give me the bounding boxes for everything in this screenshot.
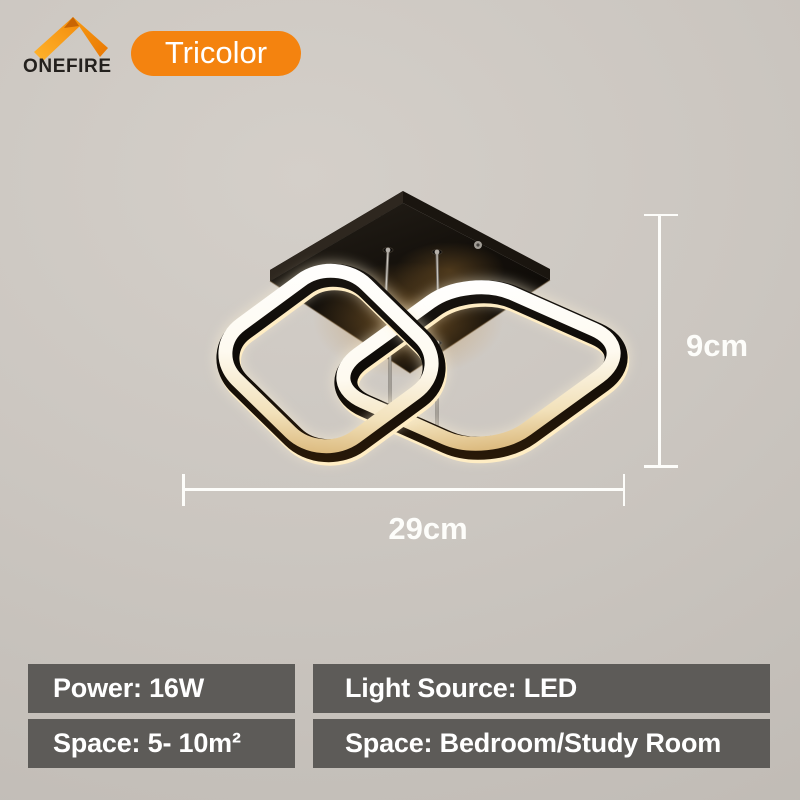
tricolor-badge: Tricolor <box>131 31 301 76</box>
width-dimension-label: 29cm <box>368 511 488 547</box>
brand-name: ONEFIRE <box>21 56 133 78</box>
spec-bar-light-source: Light Source: LED <box>313 664 770 713</box>
height-dimension-cap-bottom <box>644 465 678 468</box>
width-dimension-line <box>182 488 625 491</box>
logo-right-arm <box>73 17 108 57</box>
width-dimension-cap-right <box>623 474 626 506</box>
height-dimension-line <box>658 215 661 467</box>
onefire-logo-icon <box>30 14 112 62</box>
ceiling-lamp-photo <box>150 170 670 490</box>
spec-bar-space-size: Space: 5- 10m² <box>28 719 295 768</box>
height-dimension-label: 9cm <box>686 328 748 364</box>
width-dimension-cap-left <box>182 474 185 506</box>
spec-bar-power: Power: 16W <box>28 664 295 713</box>
height-dimension-cap-top <box>644 214 678 217</box>
product-image-canvas: ONEFIRE Tricolor <box>0 0 800 800</box>
spec-bar-space-rooms: Space: Bedroom/Study Room <box>313 719 770 768</box>
